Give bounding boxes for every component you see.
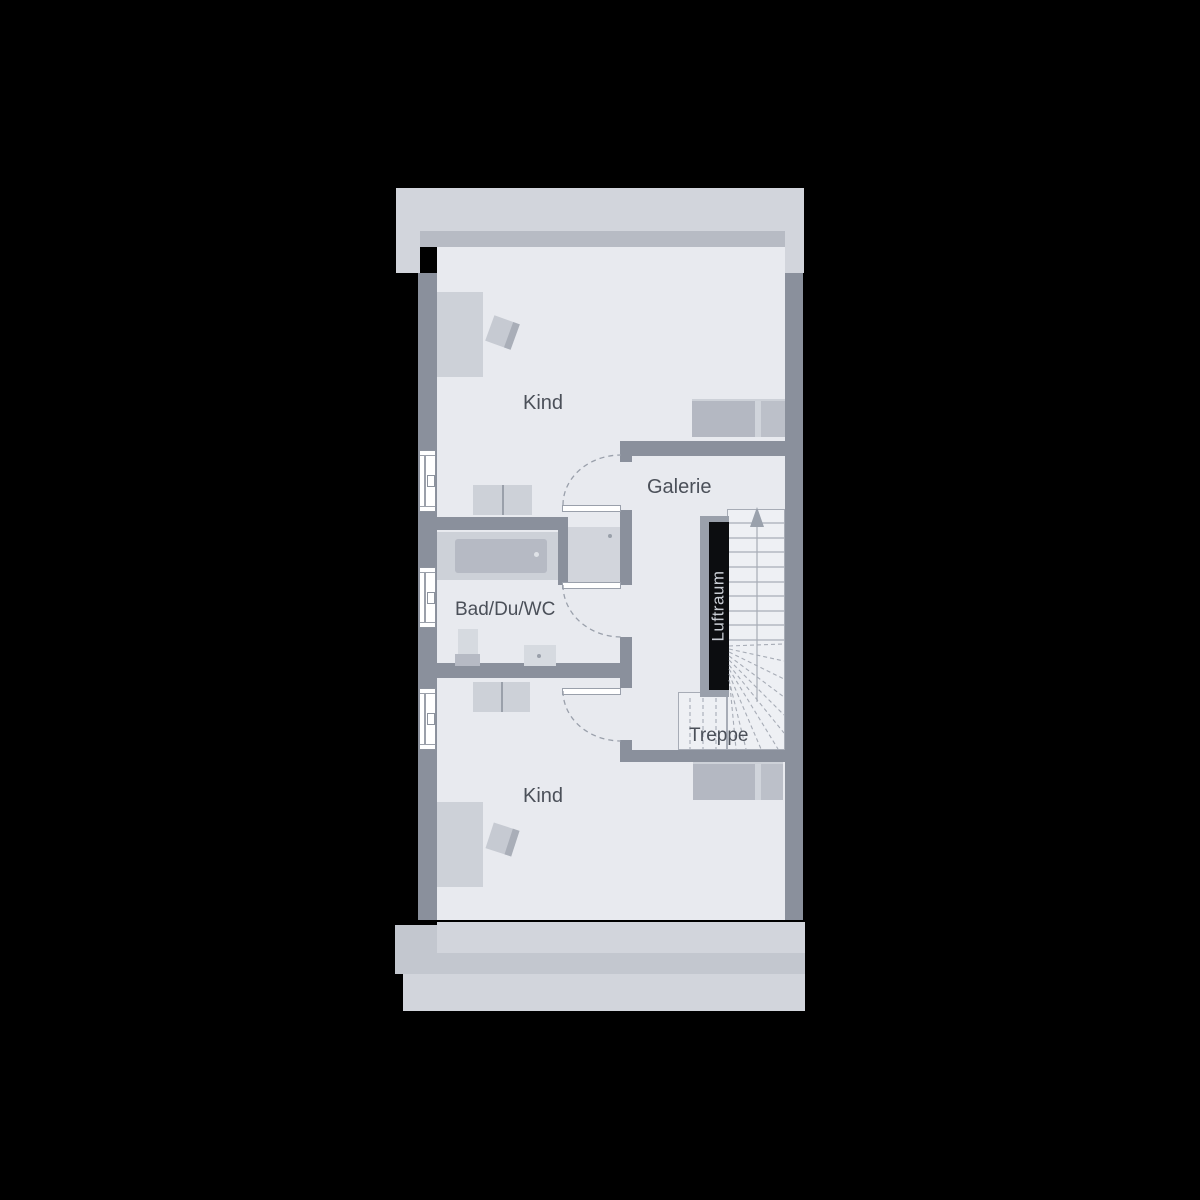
wardrobe-divider	[502, 485, 504, 515]
window-sill	[420, 455, 435, 456]
bed-bottom-room	[693, 762, 783, 800]
room-label-galerie: Galerie	[647, 476, 711, 499]
wc-bowl	[455, 654, 480, 666]
exterior-wall-top	[420, 231, 785, 247]
desk-bottom-room	[437, 802, 483, 887]
room-label-kind-top: Kind	[523, 392, 563, 415]
bathtub	[455, 539, 547, 573]
window-sill	[420, 572, 435, 573]
window-handle	[427, 475, 435, 487]
window-sill	[420, 506, 435, 507]
bed-pillow	[761, 764, 783, 800]
bath-top-wall	[437, 517, 568, 530]
roof-band-top-right-corner	[785, 188, 804, 273]
bath-shower-wall	[558, 517, 568, 585]
wardrobe-top-room	[473, 485, 532, 515]
floor-plan: Luftraum	[0, 0, 1200, 1200]
room-label-treppe: Treppe	[689, 725, 749, 747]
wardrobe-divider	[501, 682, 503, 712]
bed-top-room	[692, 399, 785, 437]
bathtub-faucet-icon	[534, 552, 539, 557]
window-left-2	[419, 567, 436, 628]
washbasin-faucet-icon	[537, 654, 541, 658]
door-leaf-top-room	[562, 505, 621, 512]
window-sill	[420, 693, 435, 694]
window-left-3	[419, 688, 436, 750]
shower-head-icon	[608, 534, 612, 538]
shower	[568, 527, 620, 583]
room-label-kind-bottom: Kind	[523, 785, 563, 808]
exterior-wall-right	[785, 273, 803, 920]
window-handle	[427, 592, 435, 604]
gallery-wall	[622, 441, 785, 456]
wc-tank	[458, 629, 478, 655]
roof-band-bottom-outer	[403, 974, 805, 1011]
window-sill	[420, 744, 435, 745]
wardrobe-bottom-room	[473, 682, 530, 712]
washbasin	[524, 645, 556, 666]
window-frame-line	[424, 694, 426, 744]
window-frame-line	[424, 456, 426, 506]
roof-band-top	[396, 188, 804, 231]
stair-run-outline	[727, 509, 785, 750]
room-label-bad: Bad/Du/WC	[455, 599, 555, 621]
bed-pillow	[761, 401, 785, 437]
luftraum-label: Luftraum	[709, 570, 729, 641]
window-handle	[427, 713, 435, 725]
desk-top-room	[437, 292, 483, 377]
exterior-wall-bottom	[418, 953, 805, 974]
window-left-1	[419, 450, 436, 512]
luftraum-void: Luftraum	[709, 522, 729, 690]
window-frame-line	[424, 573, 426, 622]
corridor-wall-mid	[620, 510, 632, 585]
door-leaf-bottom-room	[562, 688, 621, 695]
roof-band-top-left-corner	[396, 188, 420, 273]
door-leaf-bath	[562, 582, 621, 589]
window-sill	[420, 622, 435, 623]
stair-bottom-wall	[620, 750, 785, 762]
roof-band-bottom-inner	[437, 922, 805, 953]
